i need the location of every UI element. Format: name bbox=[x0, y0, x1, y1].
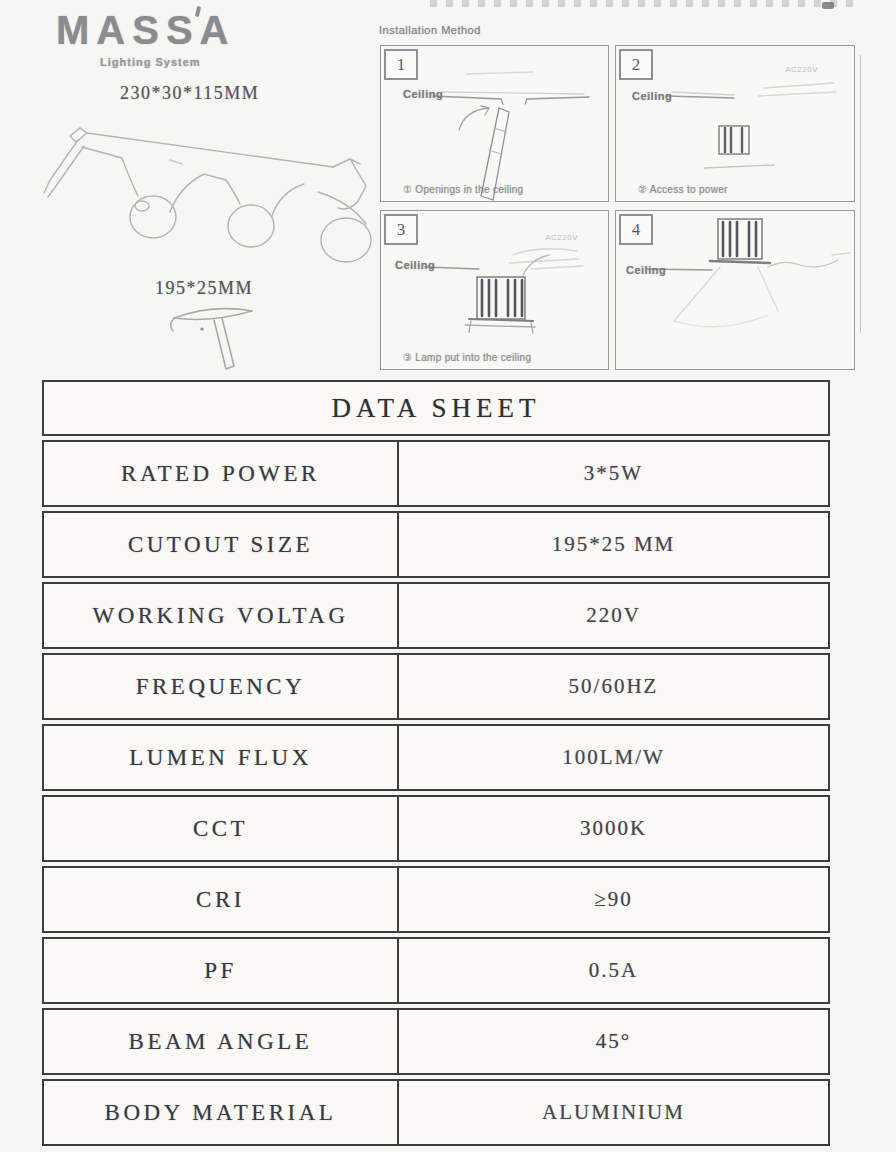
spec-label: RATED POWER bbox=[44, 442, 399, 505]
spec-label: CRI bbox=[44, 868, 399, 931]
brand-tagline: Lighting System bbox=[100, 56, 201, 68]
spec-label: WORKING VOLTAG bbox=[44, 584, 399, 647]
panel-number: 4 bbox=[619, 214, 653, 245]
spec-value: 3*5W bbox=[399, 442, 828, 505]
spec-value: 50/60HZ bbox=[399, 655, 828, 718]
scan-artifact-edge bbox=[860, 55, 861, 333]
brand-logo: MASSA bbox=[56, 8, 235, 53]
spec-label: LUMEN FLUX bbox=[44, 726, 399, 789]
ceiling-label: Ceiling bbox=[395, 259, 435, 271]
spec-value: ≥90 bbox=[399, 868, 828, 931]
panel-caption: ③ Lamp put into the ceiling bbox=[403, 352, 531, 363]
installation-title: Installation Method bbox=[379, 24, 481, 36]
ceiling-label: Ceiling bbox=[626, 264, 666, 276]
product-sketch bbox=[20, 100, 380, 295]
spec-label: CUTOUT SIZE bbox=[44, 513, 399, 576]
spec-value: 195*25 MM bbox=[399, 513, 828, 576]
spec-label: BODY MATERIAL bbox=[44, 1081, 399, 1144]
spec-value: 100LM/W bbox=[399, 726, 828, 789]
scan-artifact-dot bbox=[822, 2, 834, 9]
spec-label: PF bbox=[44, 939, 399, 1002]
table-row: CUTOUT SIZE 195*25 MM bbox=[42, 511, 830, 578]
spec-value: 220V bbox=[399, 584, 828, 647]
voltage-annotation: AC220V bbox=[785, 65, 818, 74]
table-row: LUMEN FLUX 100LM/W bbox=[42, 724, 830, 791]
panel-number: 2 bbox=[619, 49, 653, 80]
table-row: CCT 3000K bbox=[42, 795, 830, 862]
table-row: BODY MATERIAL ALUMINIUM bbox=[42, 1079, 830, 1146]
table-title: DATA SHEET bbox=[42, 380, 830, 436]
installation-panel-2: 2 Ceiling AC220V ② Access to power bbox=[615, 45, 855, 202]
table-row: FREQUENCY 50/60HZ bbox=[42, 653, 830, 720]
spec-value: ALUMINIUM bbox=[399, 1081, 828, 1144]
spec-value: 3000K bbox=[399, 797, 828, 860]
table-row: CRI ≥90 bbox=[42, 866, 830, 933]
cutout-sketch bbox=[168, 298, 258, 376]
panel-number: 1 bbox=[384, 49, 418, 80]
scan-artifact-top bbox=[430, 0, 860, 7]
spec-value: 45° bbox=[399, 1010, 828, 1073]
ceiling-label: Ceiling bbox=[403, 88, 443, 100]
table-row: BEAM ANGLE 45° bbox=[42, 1008, 830, 1075]
data-sheet-table: DATA SHEET RATED POWER 3*5W CUTOUT SIZE … bbox=[42, 380, 830, 1146]
panel-caption: ② Access to power bbox=[638, 184, 728, 195]
panel-caption: ① Openings in the ceiling bbox=[403, 184, 523, 195]
spec-label: BEAM ANGLE bbox=[44, 1010, 399, 1073]
installation-panel-1: 1 Ceiling ① Openings in the ceiling bbox=[380, 45, 609, 202]
installation-panel-4: 4 Ceiling bbox=[615, 210, 855, 370]
spec-label: FREQUENCY bbox=[44, 655, 399, 718]
table-row: RATED POWER 3*5W bbox=[42, 440, 830, 507]
spec-value: 0.5A bbox=[399, 939, 828, 1002]
installation-panel-3: 3 Ceiling AC220V ③ Lamp put into the cei… bbox=[380, 210, 609, 370]
ceiling-label: Ceiling bbox=[632, 90, 672, 102]
table-row: PF 0.5A bbox=[42, 937, 830, 1004]
panel-number: 3 bbox=[384, 214, 418, 245]
voltage-annotation: AC220V bbox=[545, 233, 578, 242]
spec-label: CCT bbox=[44, 797, 399, 860]
table-row: WORKING VOLTAG 220V bbox=[42, 582, 830, 649]
